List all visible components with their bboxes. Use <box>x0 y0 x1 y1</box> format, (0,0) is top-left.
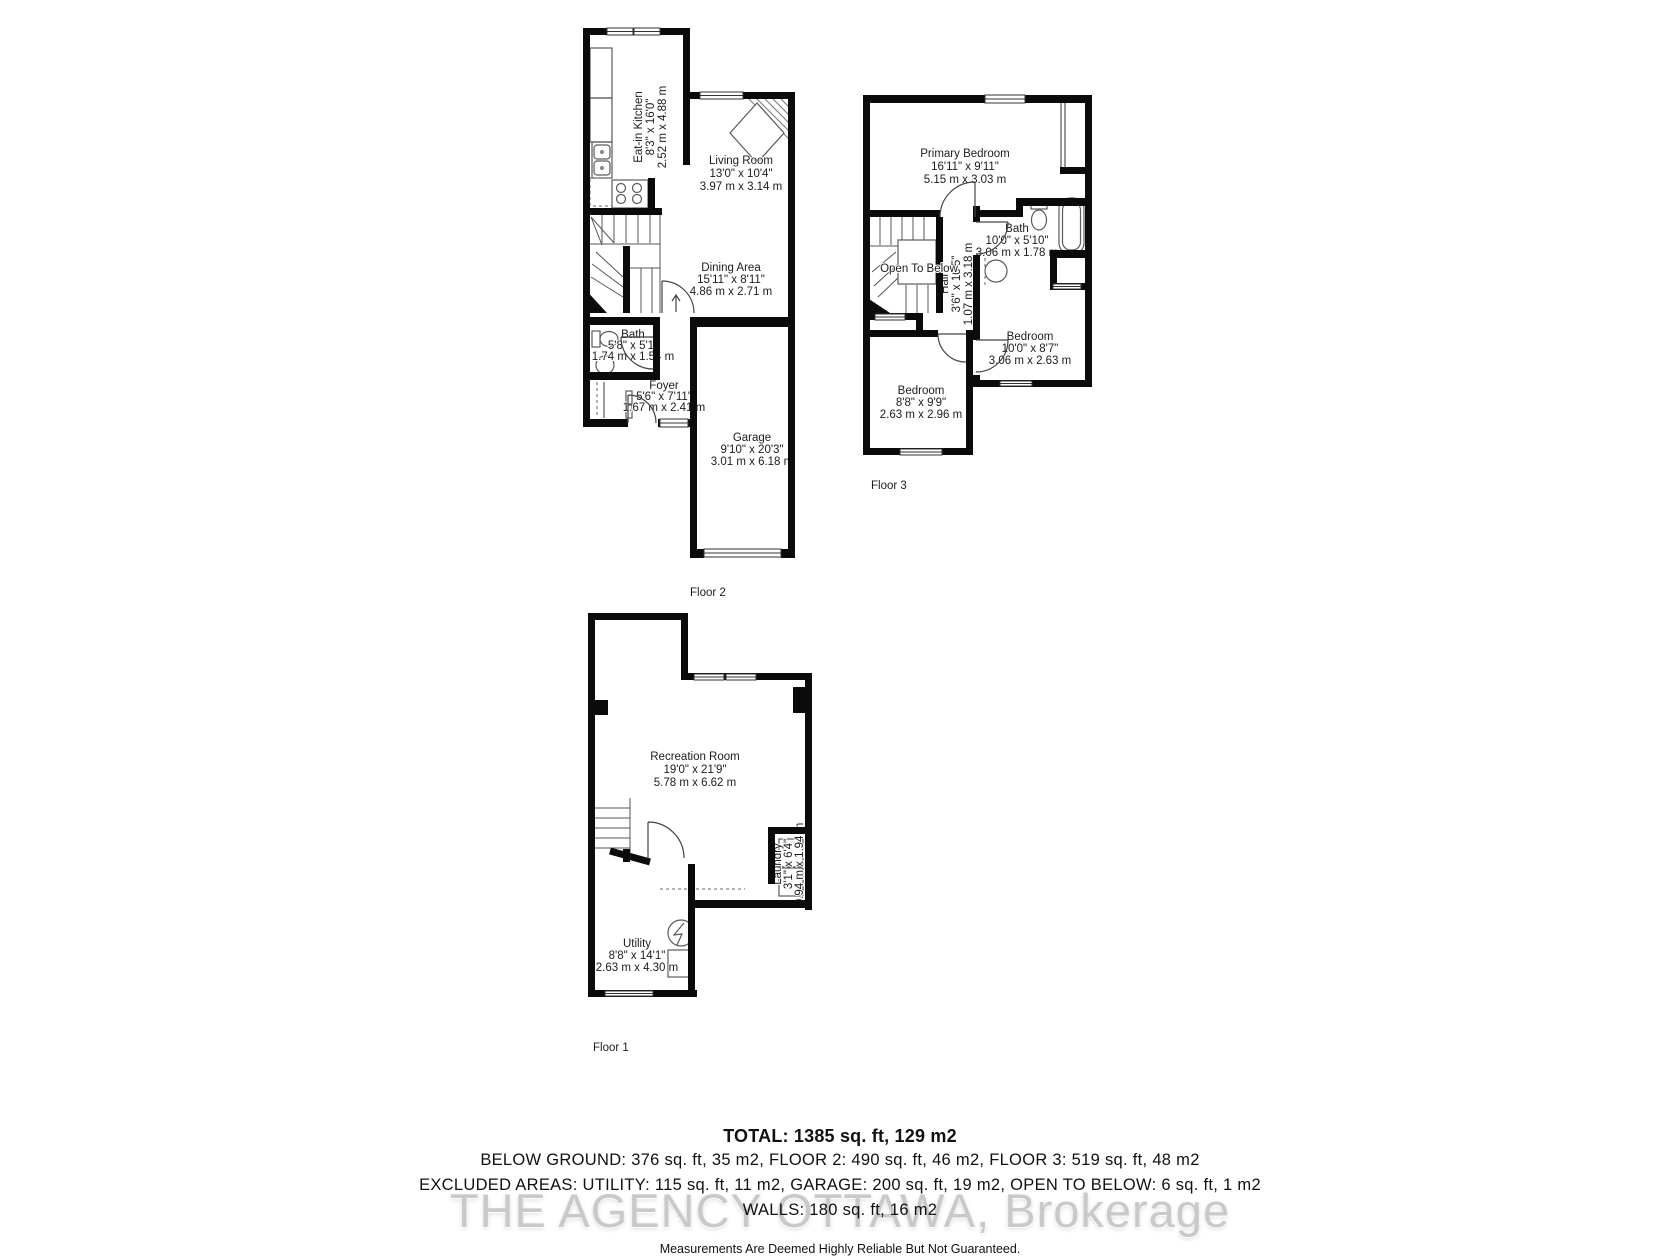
bath3-label-name: Bath <box>1005 223 1029 235</box>
floor3-plan: Primary Bedroom 16'11" x 9'11" 5.15 m x … <box>863 95 1092 492</box>
living-label-name: Living Room <box>709 155 773 167</box>
utility-label-imperial: 8'8" x 14'1" <box>609 950 666 962</box>
kitchen-counter-icon <box>590 48 612 206</box>
bedroom-right-label-metric: 3.06 m x 2.63 m <box>989 355 1071 367</box>
dining-label-metric: 4.86 m x 2.71 m <box>690 286 772 298</box>
living-label-imperial: 13'0" x 10'4" <box>709 168 772 180</box>
bedroom-right-label-imperial: 10'0" x 8'7" <box>1002 343 1059 355</box>
floor2-plan: Eat-in Kitchen 8'3" x 16'0" 2.52 m x 4.8… <box>583 28 795 599</box>
kitchen-label-name: Eat-in Kitchen <box>633 91 645 163</box>
dining-label-name: Dining Area <box>701 262 761 274</box>
floor1-plan: Recreation Room 19'0" x 21'9" 5.78 m x 6… <box>588 613 812 1054</box>
total-area-line: TOTAL: 1385 sq. ft, 129 m2 <box>0 1124 1680 1148</box>
primary-label-name: Primary Bedroom <box>920 148 1009 160</box>
garage-label-imperial: 9'10" x 20'3" <box>720 444 783 456</box>
recreation-label-imperial: 19'0" x 21'9" <box>663 764 726 776</box>
recreation-label-name: Recreation Room <box>650 751 739 763</box>
bath3-label-imperial: 10'0" x 5'10" <box>985 235 1048 247</box>
floorplan-page: Eat-in Kitchen 8'3" x 16'0" 2.52 m x 4.8… <box>0 0 1680 1260</box>
stair-hatch-icon <box>730 99 795 163</box>
bedroom-left-label-metric: 2.63 m x 2.96 m <box>880 409 962 421</box>
stove-icon <box>612 180 648 208</box>
floor2-tag: Floor 2 <box>690 587 726 599</box>
primary-label-metric: 5.15 m x 3.03 m <box>924 174 1006 186</box>
excluded-areas-line: EXCLUDED AREAS: UTILITY: 115 sq. ft, 11 … <box>0 1173 1680 1198</box>
floorplan-drawing: Eat-in Kitchen 8'3" x 16'0" 2.52 m x 4.8… <box>0 0 1680 1110</box>
bedroom-left-label-name: Bedroom <box>898 385 945 397</box>
up-arrow-icon <box>672 295 680 312</box>
walls-area-line: WALLS: 180 sq. ft, 16 m2 <box>0 1198 1680 1223</box>
bedroom-left-label-imperial: 8'8" x 9'9" <box>896 397 946 409</box>
laundry-label-metric: 0.94 m x 1.94 m <box>794 823 806 905</box>
living-label-metric: 3.97 m x 3.14 m <box>700 181 782 193</box>
floor1-walls <box>588 613 812 997</box>
floor1-doors <box>648 822 684 858</box>
bath3-label-metric: 3.06 m x 1.78 m <box>976 247 1058 259</box>
floor1-stairs-icon <box>595 798 630 855</box>
floor3-tag: Floor 3 <box>871 480 907 492</box>
kitchen-label-imperial: 8'3" x 16'0" <box>645 99 657 156</box>
garage-label-metric: 3.01 m x 6.18 m <box>711 456 793 468</box>
kitchen-label-metric: 2.52 m x 4.88 m <box>657 86 669 168</box>
bath2-label-metric: 1.74 m x 1.54 m <box>592 351 674 363</box>
floor1-tag: Floor 1 <box>593 1042 629 1054</box>
bathtub-icon <box>1059 198 1084 254</box>
garage-label-name: Garage <box>733 432 771 444</box>
measurement-disclaimer: Measurements Are Deemed Highly Reliable … <box>0 1242 1680 1256</box>
primary-label-imperial: 16'11" x 9'11" <box>931 161 999 173</box>
recreation-label-metric: 5.78 m x 6.62 m <box>654 777 736 789</box>
utility-label-name: Utility <box>623 938 651 950</box>
bedroom-right-label-name: Bedroom <box>1007 331 1054 343</box>
utility-label-metric: 2.63 m x 4.30 m <box>596 962 678 974</box>
floor-areas-line: BELOW GROUND: 376 sq. ft, 35 m2, FLOOR 2… <box>0 1148 1680 1173</box>
open-to-below-label: Open To Below <box>880 263 958 275</box>
dining-label-imperial: 15'11" x 8'11" <box>697 274 765 286</box>
area-summary: TOTAL: 1385 sq. ft, 129 m2 BELOW GROUND:… <box>0 1124 1680 1223</box>
